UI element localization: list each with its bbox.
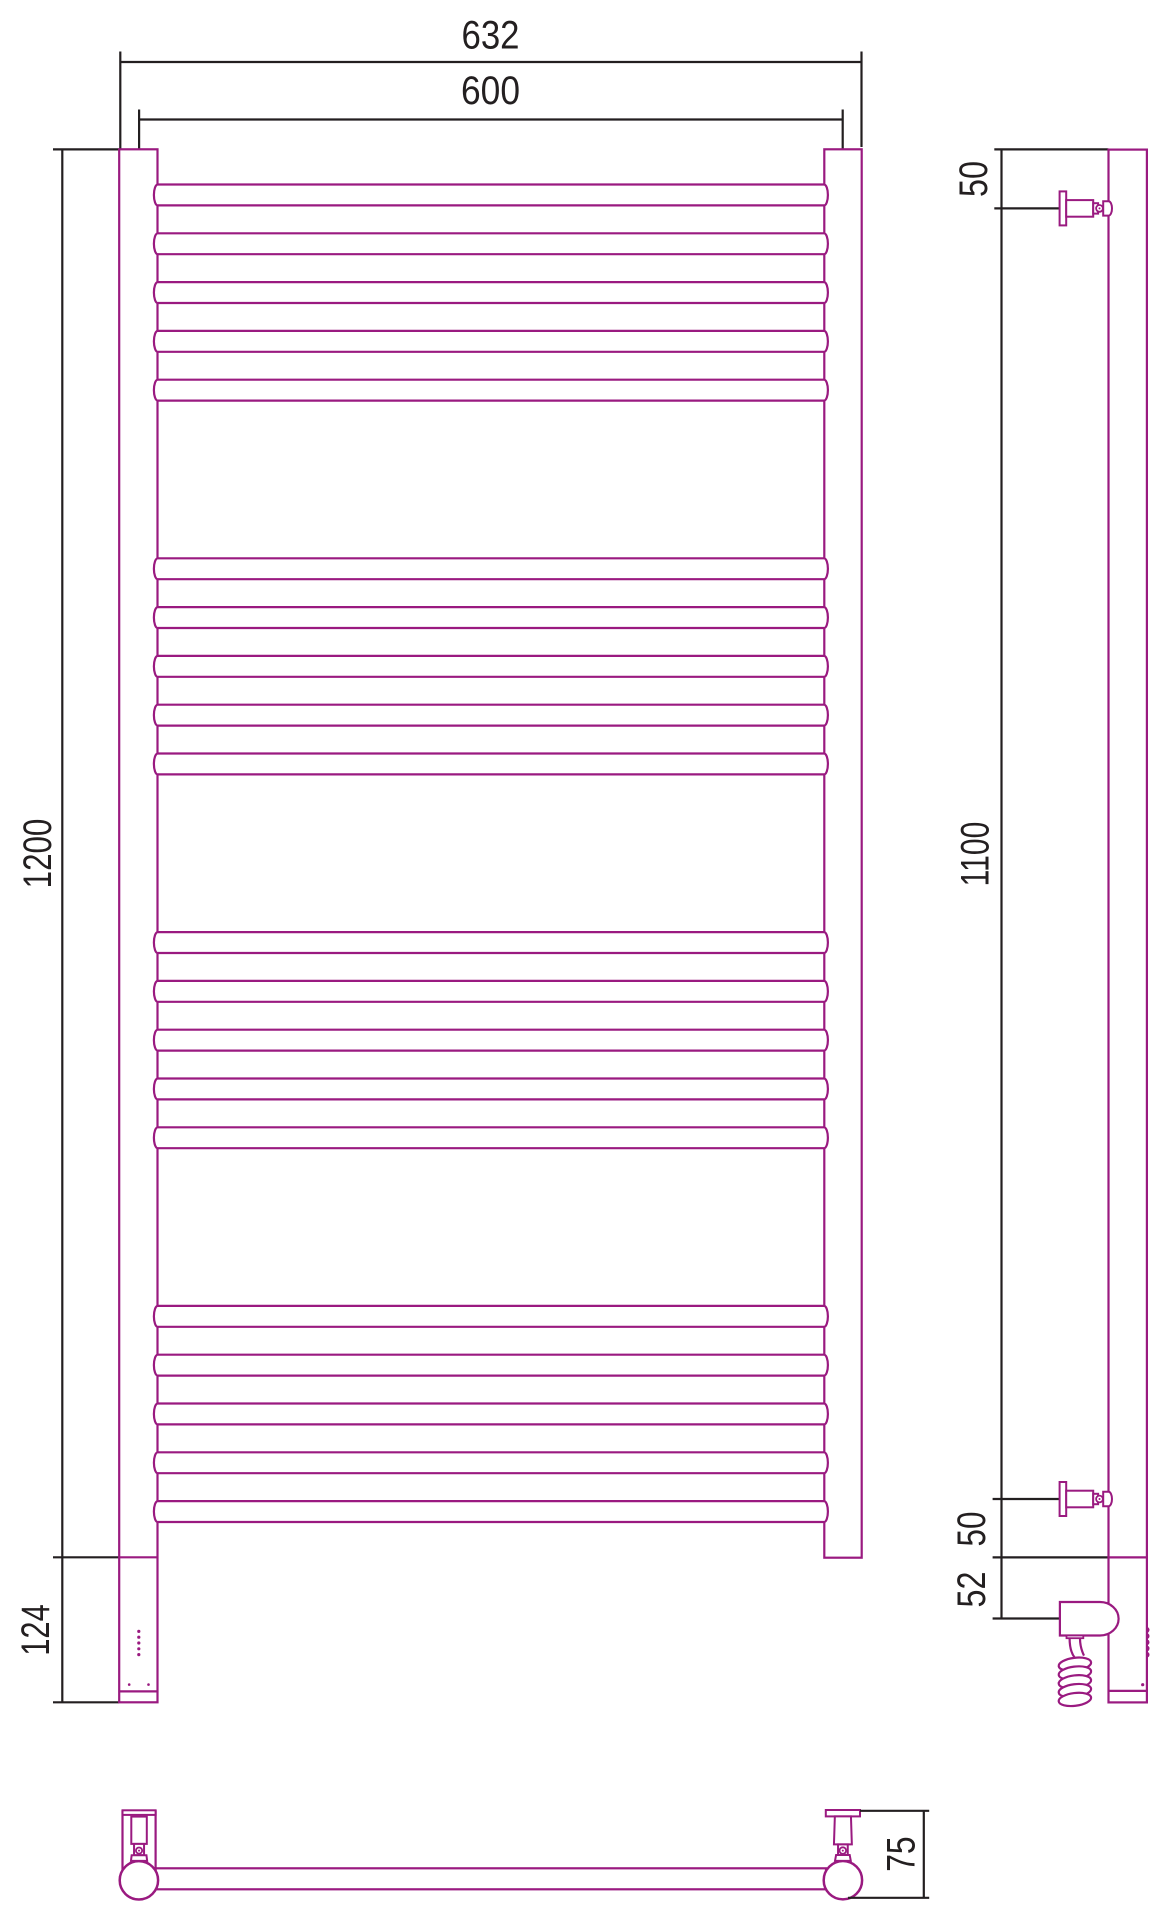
- svg-text:632: 632: [462, 14, 520, 58]
- svg-text:75: 75: [880, 1836, 924, 1871]
- svg-text:124: 124: [14, 1604, 58, 1656]
- svg-text:1100: 1100: [954, 822, 998, 887]
- svg-text:50: 50: [950, 1512, 994, 1547]
- svg-text:52: 52: [950, 1572, 994, 1608]
- svg-text:50: 50: [952, 161, 996, 197]
- svg-text:1200: 1200: [16, 819, 60, 889]
- svg-text:600: 600: [461, 69, 520, 113]
